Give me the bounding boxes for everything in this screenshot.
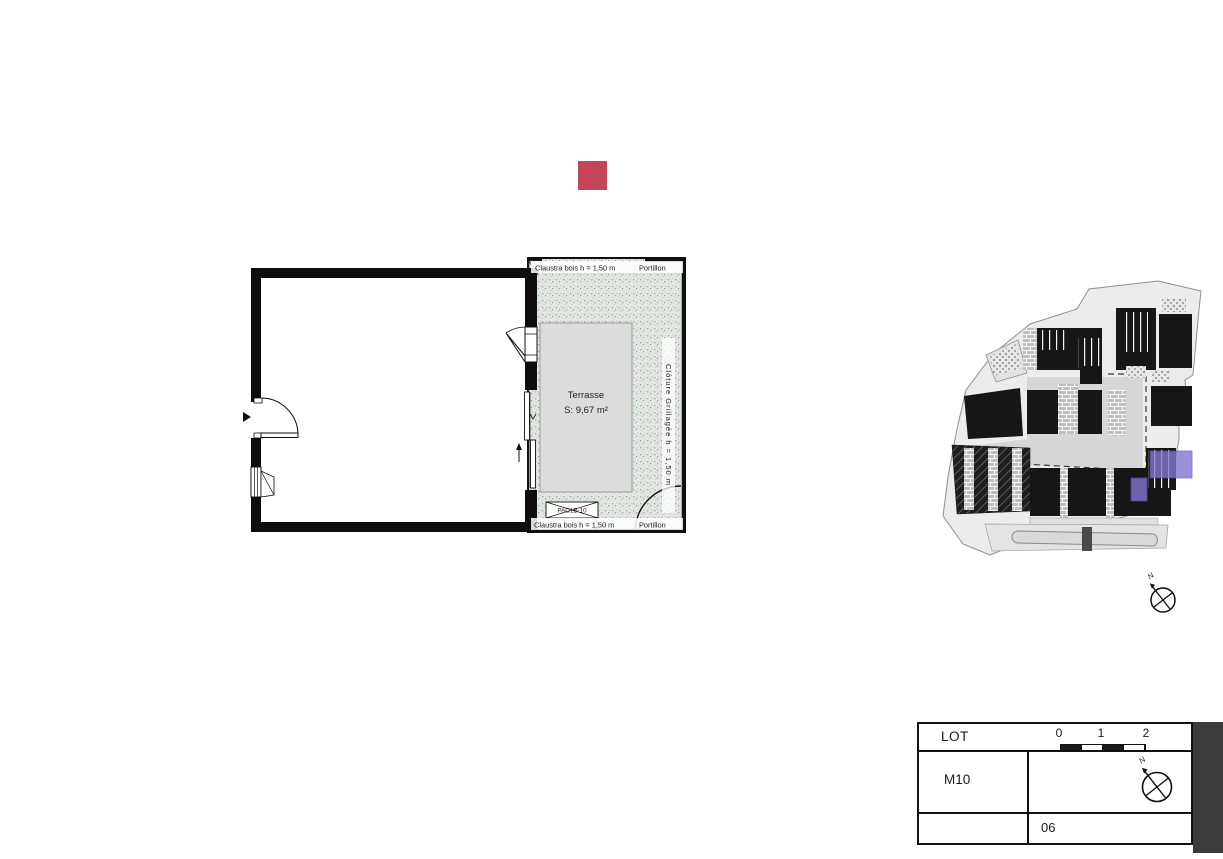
terrace-area-label: S: 9,67 m² (564, 405, 608, 416)
scale-segment (1103, 745, 1123, 750)
title-block-row-lot-value: M10 N (919, 752, 1191, 814)
fence-right-label: Clôture Grillagée h = 1,50 m (664, 364, 673, 486)
wall-right-mid (525, 362, 537, 390)
wall-left-lower (251, 497, 261, 532)
plan-sheet: Claustra bois h = 1,50 m Portillon Terra… (0, 0, 1223, 859)
title-north-compass-icon: N (1126, 754, 1186, 812)
scale-tick-2: 2 (1143, 726, 1150, 740)
door-swing-arc (261, 398, 298, 435)
equipment-tag: PAC1B-10 (546, 502, 598, 518)
entry-arrow-icon (243, 412, 251, 422)
window-right-casement (506, 327, 537, 362)
legend-swatch-rect (578, 161, 607, 190)
scale-segment (1061, 745, 1081, 750)
north-label: N (1146, 570, 1156, 581)
room-walls (251, 268, 537, 532)
wall-right-upper (525, 268, 537, 327)
terrace-name-label: Terrasse (568, 390, 604, 401)
lot-value: M10 (944, 772, 970, 787)
wall-top (251, 268, 537, 278)
title-block-side-bar (1193, 722, 1223, 853)
scale-bar (1060, 744, 1146, 751)
site-plan (930, 278, 1210, 570)
sheet-number: 06 (1041, 820, 1055, 835)
site-buildings (952, 298, 1192, 530)
fence-top-label: Claustra bois h = 1,50 m (535, 264, 615, 273)
sheet-number-cell: 06 (1029, 814, 1191, 843)
scale-tick-0: 0 (1056, 726, 1063, 740)
site-road (985, 524, 1168, 551)
up-arrow-icon (516, 443, 522, 450)
highlighted-lot-main (1150, 451, 1192, 478)
highlighted-lot-terrace (1131, 478, 1147, 501)
title-block-row-lot: LOT 0 1 2 (919, 724, 1191, 752)
wall-left-mid (251, 438, 261, 467)
compass-cell: N (1029, 752, 1191, 812)
lot-label: LOT (941, 729, 969, 744)
gate-top-label: Portillon (639, 264, 666, 273)
north-compass-icon: N (1138, 570, 1186, 622)
scale-segment (1123, 745, 1145, 750)
wall-bottom (251, 522, 537, 532)
gate-bottom-label: Portillon (639, 521, 666, 530)
terrace-area (528, 257, 685, 532)
scale-segment (1081, 745, 1103, 750)
wall-left-upper (251, 268, 261, 402)
fence-bottom-label: Claustra bois h = 1,50 m (534, 521, 614, 530)
entry-door (243, 398, 298, 438)
title-block-row-sheet: 06 (919, 814, 1191, 843)
legend-color-swatch (578, 161, 607, 190)
lot-value-cell: M10 (919, 752, 1029, 812)
window-left (251, 467, 274, 497)
equipment-tag-label: PAC1B-10 (557, 508, 587, 515)
north-label: N (1137, 755, 1147, 766)
empty-cell (919, 814, 1029, 843)
scale-tick-1: 1 (1098, 726, 1105, 740)
wall-right-lower (525, 490, 537, 522)
title-block: LOT 0 1 2 M10 N (917, 722, 1193, 845)
floor-plan: Claustra bois h = 1,50 m Portillon Terra… (240, 250, 700, 540)
